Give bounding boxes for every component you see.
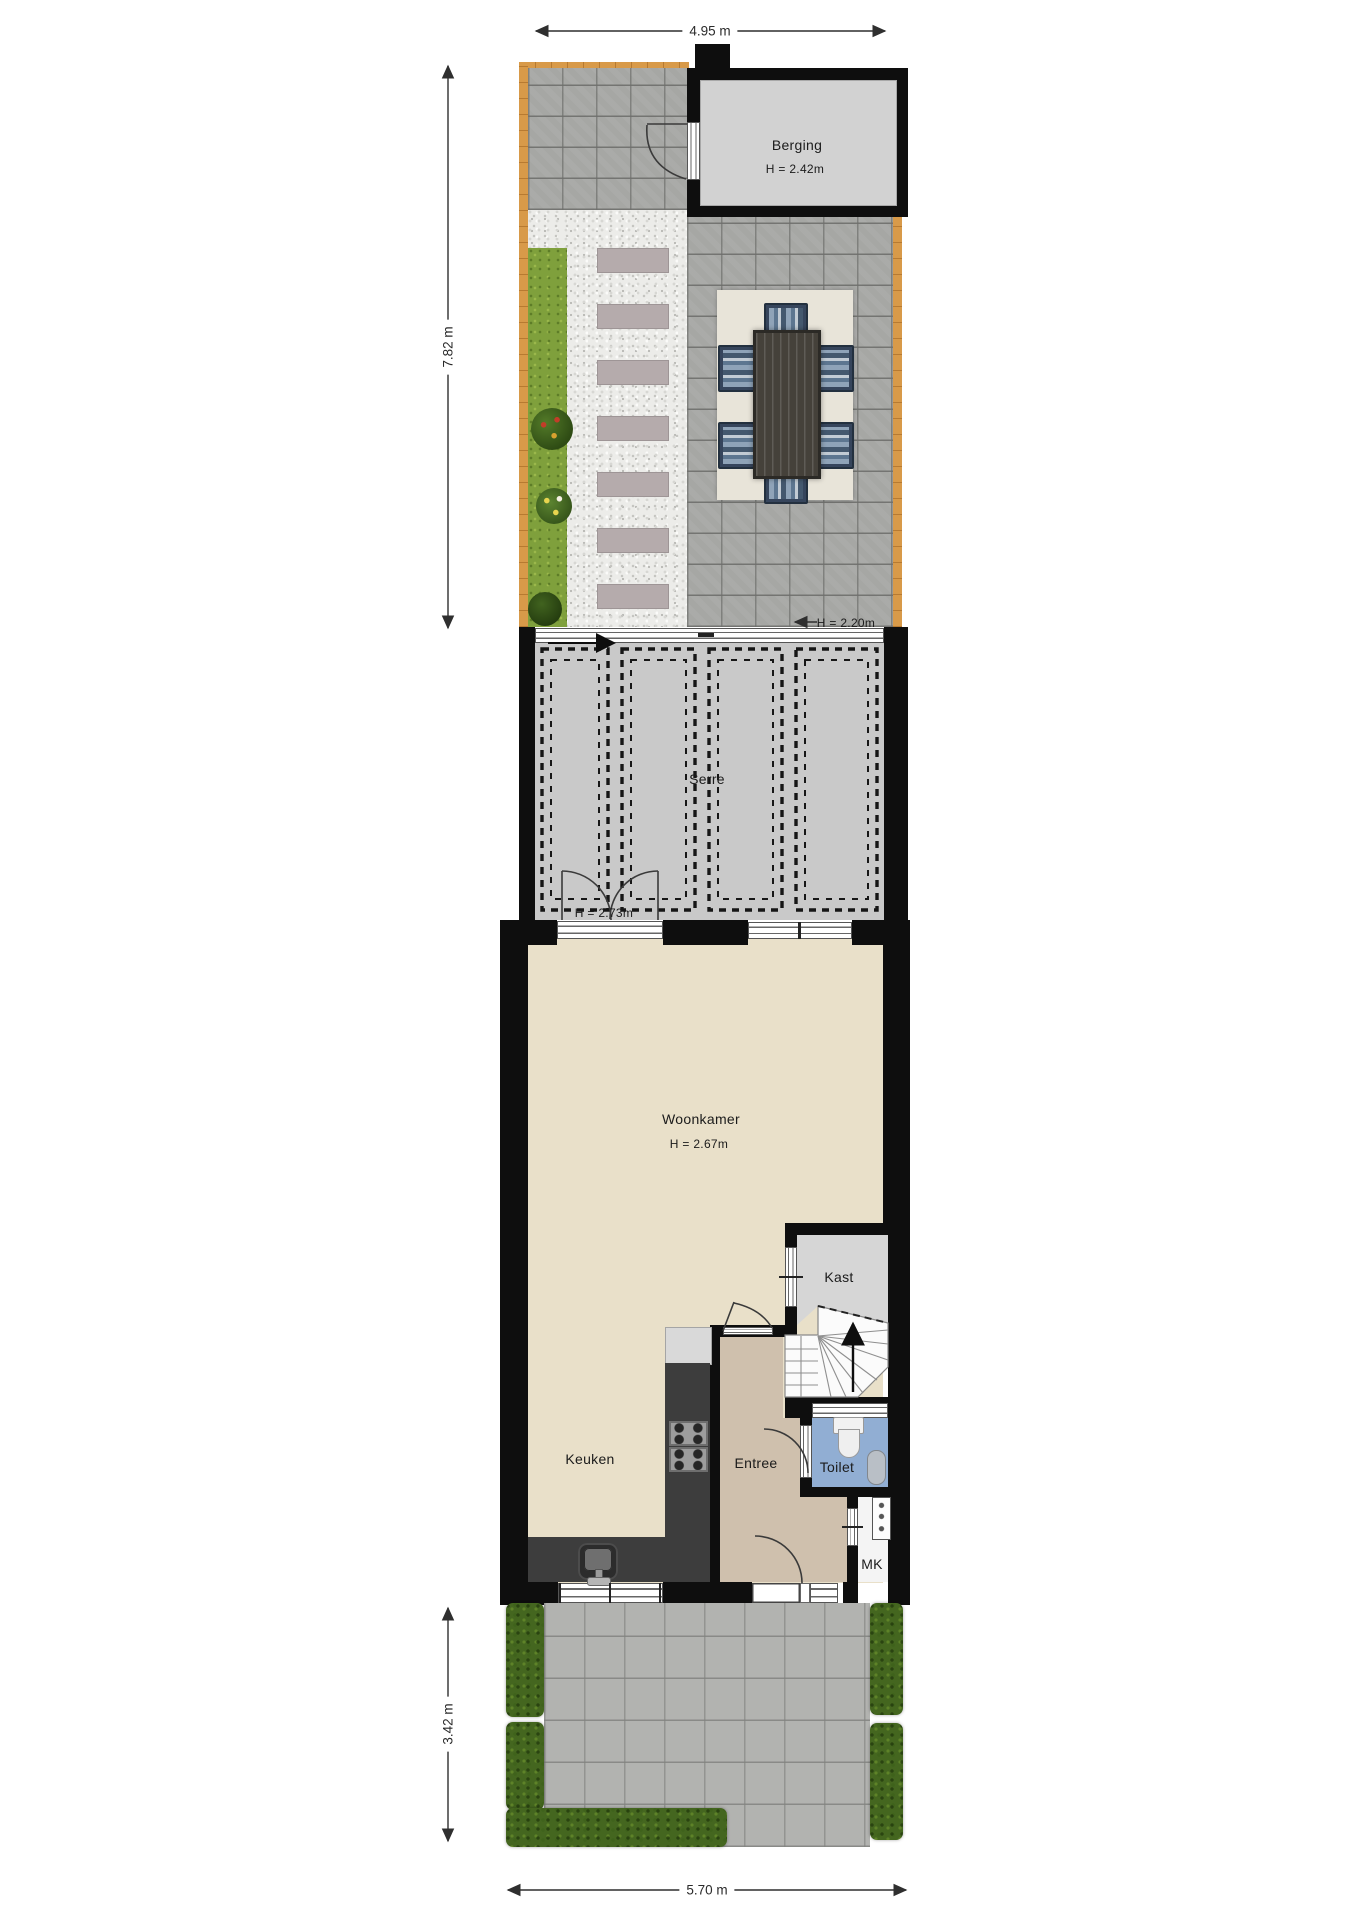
window-mullion xyxy=(559,1583,561,1603)
patio-chair xyxy=(718,345,758,392)
front-door-frame xyxy=(800,1583,810,1603)
berging-door-opening xyxy=(687,122,700,180)
entree-floor xyxy=(783,1418,800,1582)
chair-cushion xyxy=(769,308,803,332)
height-label-berging: H = 2.42m xyxy=(766,162,824,176)
berging-wall-stub xyxy=(695,44,730,70)
serre-wall-right xyxy=(884,627,908,920)
patio-chair xyxy=(718,422,758,469)
garden-wood-edge-left xyxy=(519,62,528,627)
serre-double-door-opening xyxy=(557,921,663,939)
kitchen-faucet-base xyxy=(587,1577,611,1586)
house-wall-top-b xyxy=(663,920,748,945)
height-label-serre: H = 2.20m xyxy=(817,616,875,630)
hedge-bottom xyxy=(506,1808,727,1847)
entree-door-opening xyxy=(723,1327,773,1335)
front-door-sidelight xyxy=(810,1583,838,1603)
dim-garden-width: 4.95 m xyxy=(682,23,737,40)
toilet-hand-basin xyxy=(867,1450,886,1485)
room-label-keuken: Keuken xyxy=(565,1451,614,1467)
patio-table xyxy=(753,330,821,479)
toilet-bowl xyxy=(838,1429,860,1458)
stepping-stone xyxy=(597,472,669,497)
window-mullion xyxy=(659,1583,661,1603)
chair-cushion xyxy=(723,350,753,387)
serre-wall-left xyxy=(519,627,535,920)
kast-wall-top xyxy=(785,1223,910,1235)
house-wall-top-a xyxy=(500,920,557,945)
room-label-mk: MK xyxy=(861,1556,883,1572)
house-wall-bottom-a xyxy=(500,1582,558,1605)
kitchen-counter-top-section xyxy=(665,1327,712,1365)
stepping-stone xyxy=(597,360,669,385)
entree-floor xyxy=(800,1497,847,1582)
garden-bush xyxy=(528,592,562,626)
meter-panel xyxy=(872,1497,891,1540)
garden-flower-bush xyxy=(536,488,572,524)
dim-front-garden-depth: 3.42 m xyxy=(440,1696,457,1751)
room-label-toilet: Toilet xyxy=(820,1459,854,1475)
window-mullion xyxy=(798,922,801,939)
window-mullion xyxy=(609,1583,611,1603)
height-label-woonkamer: H = 2.67m xyxy=(670,1137,728,1151)
stepping-stone xyxy=(597,584,669,609)
house-wall-bottom-b xyxy=(663,1582,752,1605)
room-label-woonkamer: Woonkamer xyxy=(662,1111,740,1127)
room-label-serre: Serre xyxy=(689,771,725,787)
house-wall-top-c xyxy=(852,920,910,945)
cooktop-burners xyxy=(668,1446,709,1473)
house-wall-left xyxy=(500,920,528,1605)
hedge-left xyxy=(506,1722,544,1810)
hedge-left xyxy=(506,1603,544,1717)
front-door-leaf xyxy=(752,1583,800,1603)
chair-cushion xyxy=(723,427,753,464)
garden-tree xyxy=(531,408,573,450)
stepping-stone xyxy=(597,528,669,553)
kast-door-tick xyxy=(779,1276,803,1278)
height-label-serre-doors: H = 2.73m xyxy=(575,906,633,920)
stepping-stone xyxy=(597,416,669,441)
house-wall-right-upper xyxy=(883,920,910,1223)
hedge-right xyxy=(870,1603,903,1715)
chair-cushion xyxy=(819,427,849,464)
room-label-kast: Kast xyxy=(824,1269,853,1285)
room-label-berging: Berging xyxy=(772,137,822,153)
floor-plan: 4.95 m 7.82 m 3.42 m 5.70 m Berging H = … xyxy=(0,0,1358,1920)
stepping-stone xyxy=(597,304,669,329)
kitchen-counter-south xyxy=(528,1537,710,1582)
stepping-stone xyxy=(597,248,669,273)
toilet-wall-bottom xyxy=(800,1487,888,1497)
house-wall-bottom-d xyxy=(888,1582,910,1605)
chair-cushion xyxy=(819,350,849,387)
mk-door-tick xyxy=(842,1526,863,1528)
kitchen-sink-basin xyxy=(584,1548,612,1571)
hedge-right xyxy=(870,1723,903,1840)
garden-wood-edge-right xyxy=(893,214,902,627)
house-wall-bottom-c xyxy=(843,1582,858,1605)
toilet-window xyxy=(812,1403,888,1418)
room-label-entree: Entree xyxy=(734,1455,777,1471)
dim-house-width: 5.70 m xyxy=(679,1882,734,1899)
dim-garden-depth: 7.82 m xyxy=(440,319,457,374)
serre-slider-handle xyxy=(698,633,714,637)
toilet-door xyxy=(800,1425,812,1478)
garden-paving-top xyxy=(528,68,687,210)
cooktop-burners xyxy=(668,1420,709,1447)
